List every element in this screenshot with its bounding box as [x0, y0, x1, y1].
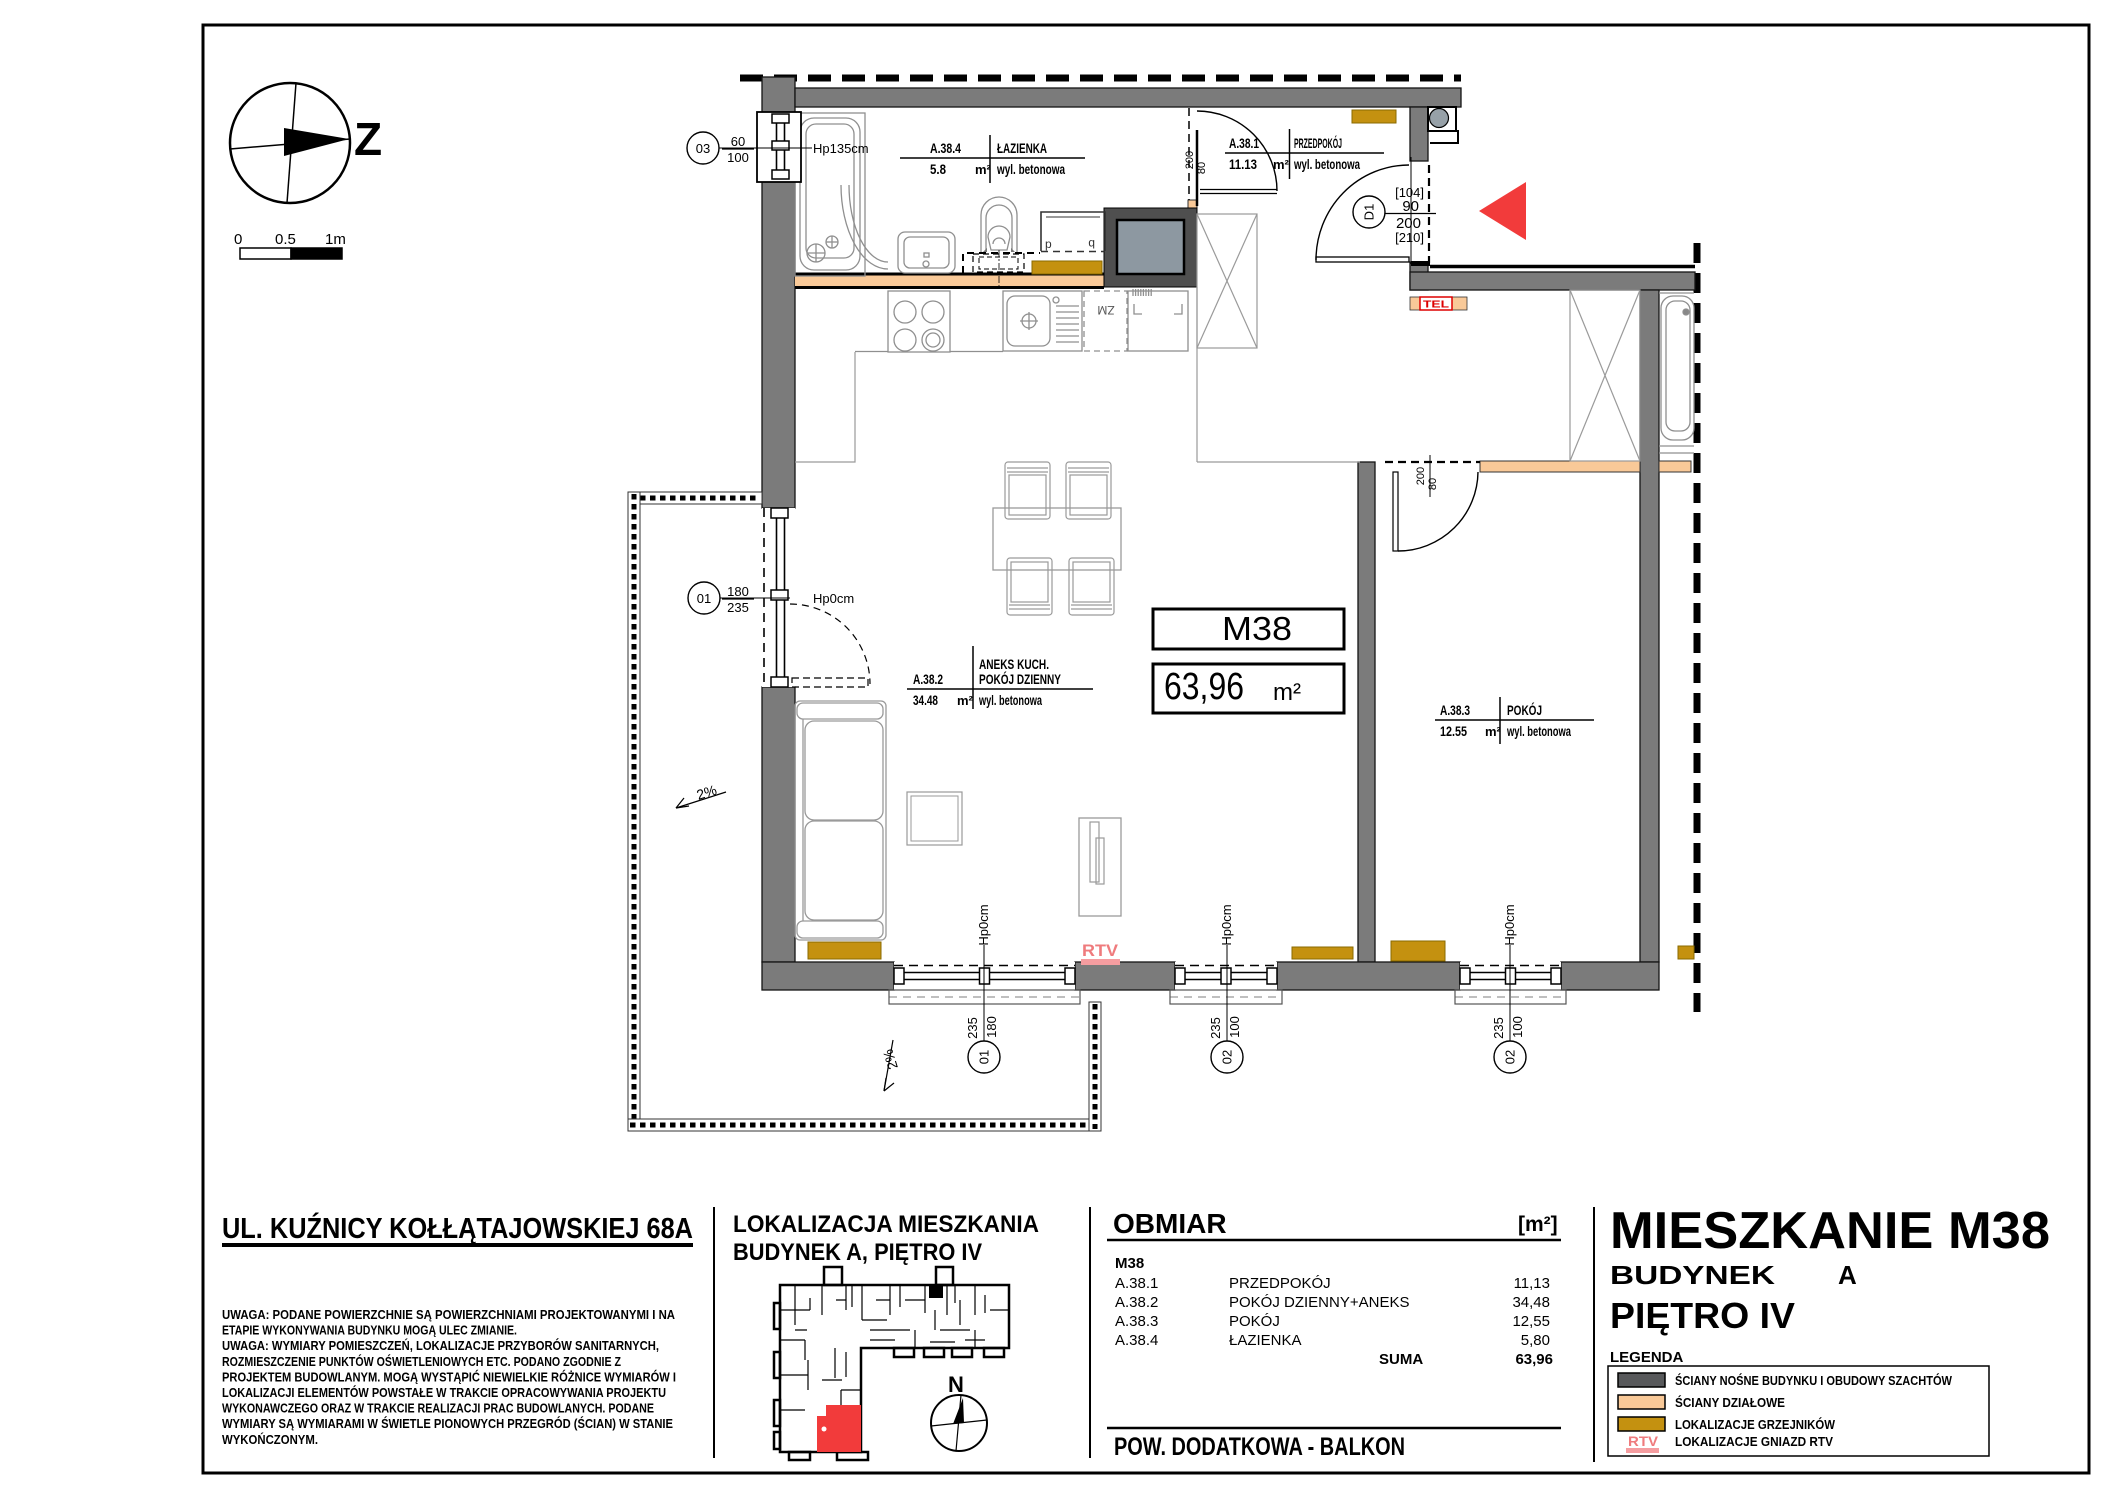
svg-text:A.38.2: A.38.2	[913, 671, 943, 687]
svg-text:ŚCIANY NOŚNE BUDYNKU I OBUDOWY: ŚCIANY NOŚNE BUDYNKU I OBUDOWY SZACHTÓW	[1675, 1373, 1952, 1388]
svg-text:12.55: 12.55	[1440, 723, 1467, 739]
svg-text:ŁAZIENKA: ŁAZIENKA	[997, 140, 1047, 156]
svg-text:m²: m²	[975, 162, 992, 177]
svg-text:01: 01	[697, 591, 711, 606]
svg-text:m²: m²	[1273, 679, 1301, 706]
svg-text:02: 02	[1220, 1050, 1235, 1064]
svg-text:M38: M38	[1222, 610, 1292, 647]
svg-text:LEGENDA: LEGENDA	[1610, 1349, 1684, 1366]
svg-text:90: 90	[1402, 198, 1419, 215]
svg-text:Hp135cm: Hp135cm	[813, 141, 869, 156]
svg-text:PIĘTRO IV: PIĘTRO IV	[1610, 1295, 1795, 1336]
svg-text:80: 80	[1427, 478, 1439, 490]
svg-text:M38: M38	[1115, 1255, 1144, 1272]
svg-text:235: 235	[727, 600, 749, 615]
svg-text:UWAGA: PODANE POWIERZCHNIE SĄ: UWAGA: PODANE POWIERZCHNIE SĄ POWIERZCHN…	[222, 1308, 675, 1322]
svg-text:63,96: 63,96	[1515, 1351, 1553, 1368]
svg-text:34.48: 34.48	[913, 692, 938, 708]
svg-text:ROZMIESZCZENIE PUNKTÓW OŚWIETL: ROZMIESZCZENIE PUNKTÓW OŚWIETLENIOWYCH E…	[222, 1354, 621, 1369]
svg-text:Hp0cm: Hp0cm	[813, 591, 854, 606]
svg-text:LOKALIZACJI ELEMENTÓW POWSTAŁE: LOKALIZACJI ELEMENTÓW POWSTAŁE W TRAKCIE…	[222, 1385, 666, 1400]
svg-text:A.38.3: A.38.3	[1115, 1313, 1158, 1330]
svg-text:A.38.1: A.38.1	[1229, 135, 1259, 151]
svg-text:m²: m²	[1485, 724, 1502, 739]
svg-text:PROJEKTEM BUDOWLANYM. MOGĄ WYS: PROJEKTEM BUDOWLANYM. MOGĄ WYSTĄPIĆ NIEW…	[222, 1369, 676, 1384]
svg-text:A.38.3: A.38.3	[1440, 702, 1470, 718]
svg-text:235: 235	[1208, 1017, 1223, 1039]
svg-text:wyl. betonowa: wyl. betonowa	[1506, 723, 1571, 739]
svg-text:Hp0cm: Hp0cm	[1219, 904, 1234, 945]
svg-text:PRZEDPOKÓJ: PRZEDPOKÓJ	[1229, 1275, 1331, 1292]
svg-text:03: 03	[696, 141, 710, 156]
svg-text:100: 100	[1510, 1016, 1525, 1038]
svg-text:D1: D1	[1362, 204, 1377, 221]
svg-text:12,55: 12,55	[1512, 1313, 1550, 1330]
svg-text:200: 200	[1415, 467, 1427, 485]
svg-text:p: p	[1045, 237, 1052, 251]
svg-text:OBMIAR: OBMIAR	[1113, 1208, 1227, 1239]
svg-text:11.13: 11.13	[1229, 156, 1257, 172]
svg-text:WYKONAWCZEGO ORAZ W TRAKCIE RE: WYKONAWCZEGO ORAZ W TRAKCIE REALIZACJI P…	[222, 1402, 654, 1416]
svg-text:LOKALIZACJA MIESZKANIA: LOKALIZACJA MIESZKANIA	[733, 1211, 1039, 1238]
svg-text:ŁAZIENKA: ŁAZIENKA	[1229, 1332, 1302, 1349]
svg-text:A: A	[1838, 1260, 1857, 1290]
svg-text:34,48: 34,48	[1512, 1294, 1550, 1311]
svg-text:Z: Z	[354, 113, 382, 165]
svg-text:180: 180	[727, 584, 749, 599]
svg-text:MIESZKANIE M38: MIESZKANIE M38	[1610, 1202, 2050, 1260]
svg-text:ANEKS KUCH.: ANEKS KUCH.	[979, 656, 1049, 672]
svg-text:100: 100	[1227, 1016, 1242, 1038]
svg-text:ZM: ZM	[1097, 303, 1114, 317]
svg-text:POKÓJ DZIENNY+ANEKS: POKÓJ DZIENNY+ANEKS	[1229, 1294, 1409, 1311]
svg-text:wyl. betonowa: wyl. betonowa	[1293, 156, 1360, 172]
svg-text:POKÓJ DZIENNY: POKÓJ DZIENNY	[979, 670, 1061, 687]
svg-text:2%: 2%	[695, 782, 719, 803]
svg-text:N: N	[948, 1372, 964, 1397]
svg-text:60: 60	[731, 134, 745, 149]
svg-text:[m²]: [m²]	[1518, 1213, 1558, 1236]
svg-text:63,96: 63,96	[1164, 666, 1244, 708]
svg-text:180: 180	[984, 1016, 999, 1038]
svg-text:RTV: RTV	[1082, 941, 1119, 960]
svg-text:ŚCIANY DZIAŁOWE: ŚCIANY DZIAŁOWE	[1675, 1395, 1785, 1410]
svg-text:A.38.4: A.38.4	[930, 140, 961, 156]
svg-text:02: 02	[1503, 1050, 1518, 1064]
svg-text:01: 01	[977, 1050, 992, 1064]
svg-text:SUMA: SUMA	[1379, 1351, 1423, 1368]
svg-text:A.38.2: A.38.2	[1115, 1294, 1158, 1311]
svg-text:m²: m²	[1273, 157, 1290, 172]
svg-text:wyl. betonowa: wyl. betonowa	[978, 692, 1042, 708]
svg-text:0: 0	[234, 231, 242, 248]
svg-text:PRZEDPOKÓJ: PRZEDPOKÓJ	[1294, 134, 1342, 151]
svg-text:ETAPIE WYKONYWANIA BUDYNKU MOG: ETAPIE WYKONYWANIA BUDYNKU MOGĄ ULEC ZMI…	[222, 1324, 517, 1338]
svg-text:11,13: 11,13	[1514, 1275, 1550, 1292]
svg-text:POKÓJ: POKÓJ	[1507, 701, 1542, 718]
svg-text:m²: m²	[957, 693, 974, 708]
svg-text:100: 100	[727, 150, 749, 165]
svg-text:80: 80	[1196, 162, 1208, 174]
svg-text:BUDYNEK: BUDYNEK	[1610, 1260, 1775, 1290]
svg-text:200: 200	[1184, 151, 1196, 169]
svg-text:2%: 2%	[880, 1047, 901, 1071]
svg-text:A.38.4: A.38.4	[1115, 1332, 1158, 1349]
svg-text:Hp0cm: Hp0cm	[976, 904, 991, 945]
svg-text:TEL: TEL	[1423, 300, 1449, 311]
svg-text:b: b	[1088, 237, 1095, 251]
svg-text:UWAGA: WYMIARY POMIESZCZEŃ, LO: UWAGA: WYMIARY POMIESZCZEŃ, LOKALIZACJE …	[222, 1338, 659, 1353]
svg-text:[210]: [210]	[1395, 230, 1424, 245]
svg-text:5,80: 5,80	[1521, 1332, 1550, 1349]
svg-text:POKÓJ: POKÓJ	[1229, 1313, 1280, 1330]
svg-text:UL. KUŹNICY KOŁŁĄTAJOWSKIEJ 68: UL. KUŹNICY KOŁŁĄTAJOWSKIEJ 68A	[222, 1211, 693, 1245]
svg-text:Hp0cm: Hp0cm	[1502, 904, 1517, 945]
svg-text:POW. DODATKOWA - BALKON: POW. DODATKOWA - BALKON	[1114, 1433, 1405, 1461]
svg-text:LOKALIZACJE GNIAZD RTV: LOKALIZACJE GNIAZD RTV	[1675, 1435, 1834, 1449]
svg-text:LOKALIZACJE GRZEJNIKÓW: LOKALIZACJE GRZEJNIKÓW	[1675, 1417, 1835, 1432]
svg-text:235: 235	[1491, 1017, 1506, 1039]
svg-text:WYMIARY SĄ WYMIARAMI W ŚWIETLE: WYMIARY SĄ WYMIARAMI W ŚWIETLE PIONOWYCH…	[222, 1416, 673, 1431]
svg-text:0.5: 0.5	[275, 231, 296, 248]
svg-text:1m: 1m	[325, 231, 346, 248]
svg-text:BUDYNEK A, PIĘTRO IV: BUDYNEK A, PIĘTRO IV	[733, 1239, 982, 1266]
svg-text:A.38.1: A.38.1	[1115, 1275, 1158, 1292]
svg-text:RTV: RTV	[1628, 1433, 1659, 1449]
svg-text:5.8: 5.8	[930, 161, 946, 177]
svg-text:wyl. betonowa: wyl. betonowa	[996, 161, 1065, 177]
svg-text:235: 235	[965, 1017, 980, 1039]
svg-text:WYKOŃCZONYM.: WYKOŃCZONYM.	[222, 1432, 318, 1447]
